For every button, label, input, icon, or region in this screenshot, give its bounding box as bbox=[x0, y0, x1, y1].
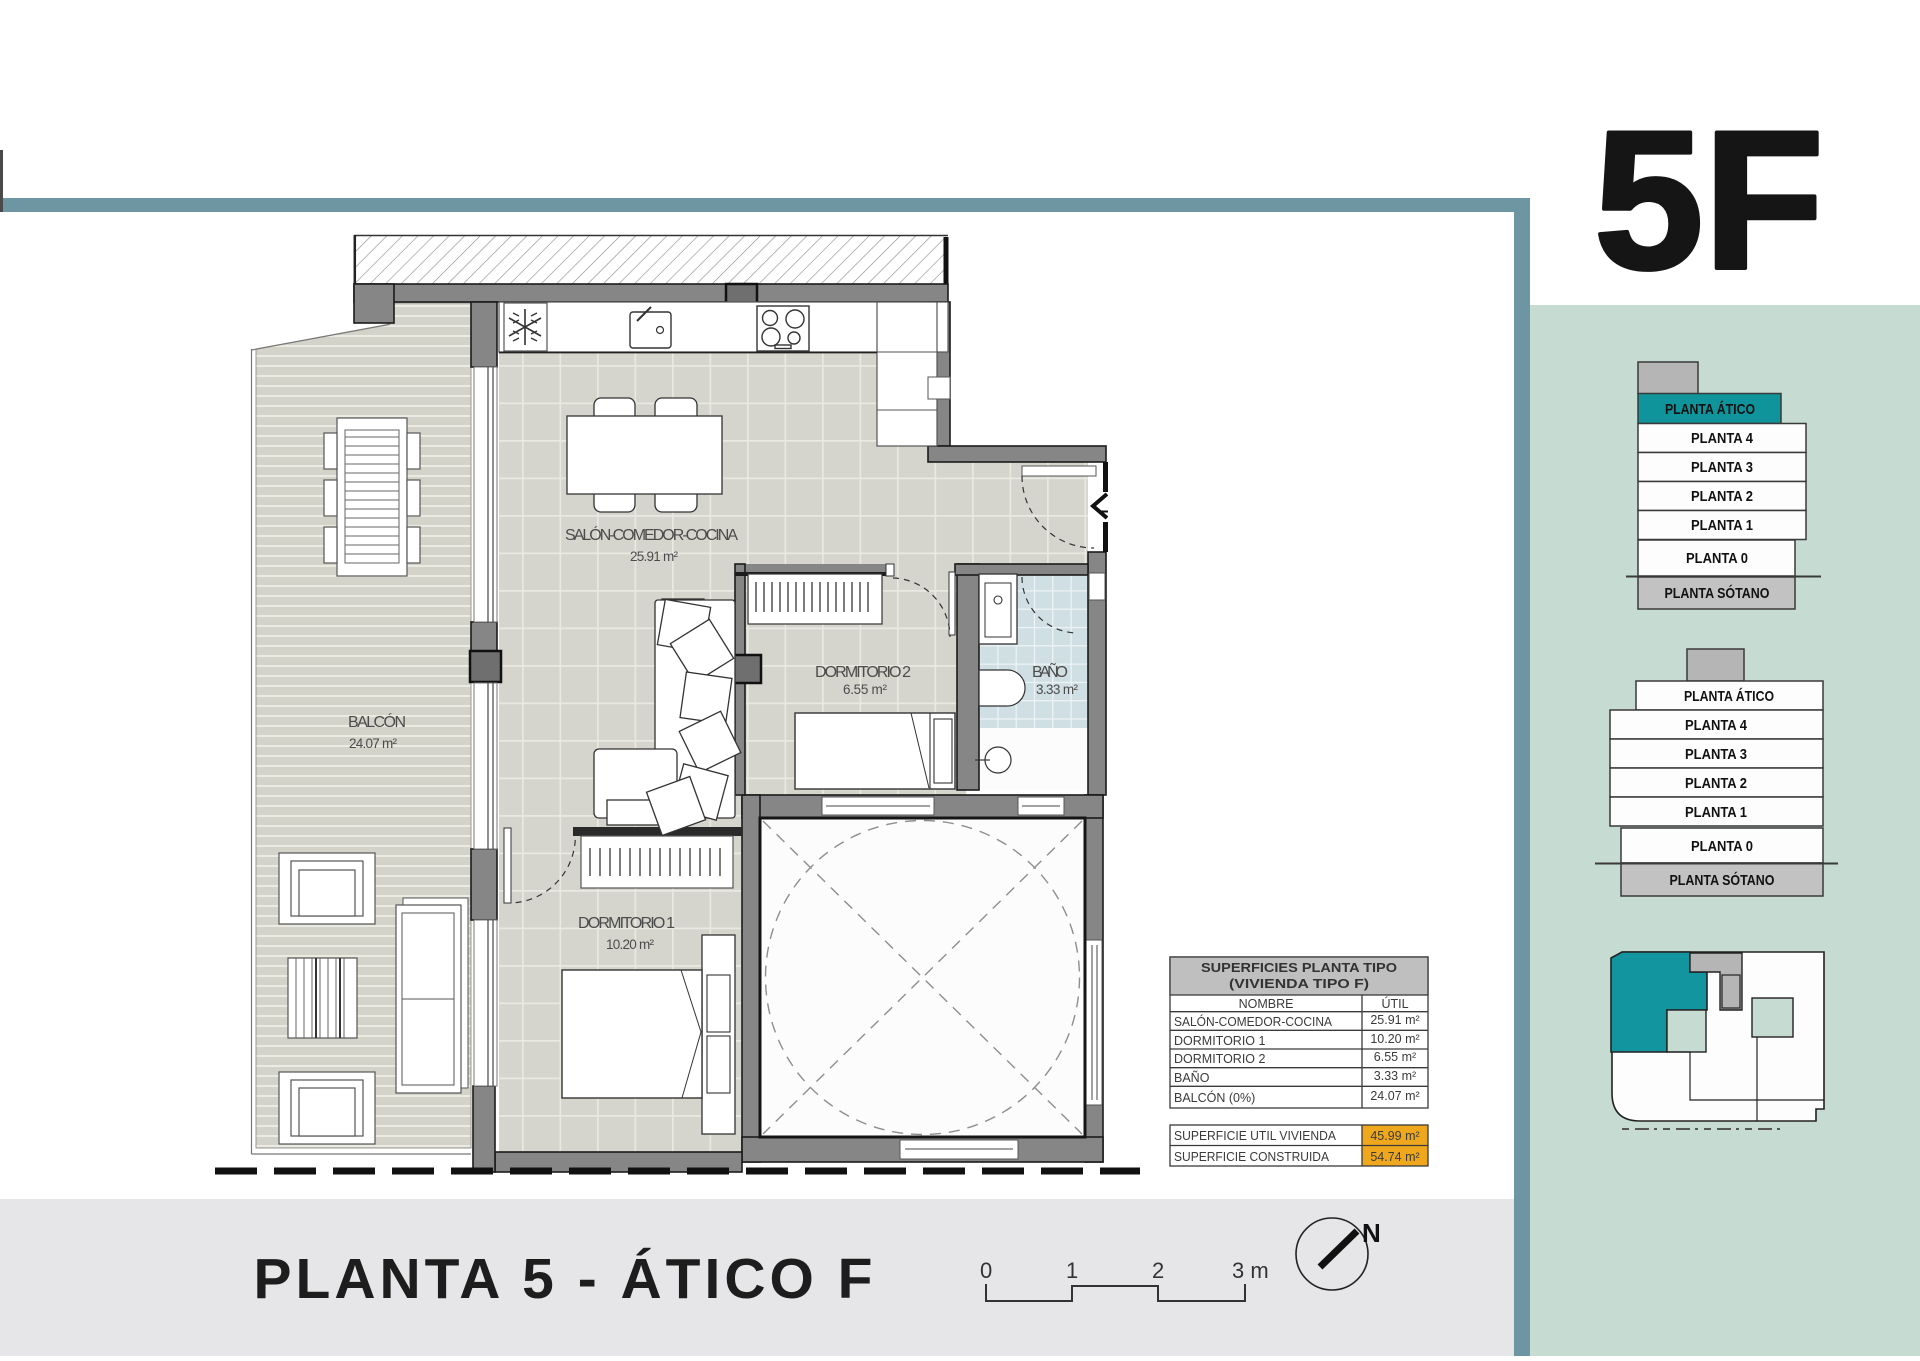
svg-text:10.20 m²: 10.20 m² bbox=[606, 937, 655, 952]
svg-text:PLANTA SÓTANO: PLANTA SÓTANO bbox=[1665, 584, 1770, 602]
svg-text:BAÑO: BAÑO bbox=[1174, 1071, 1210, 1085]
svg-text:PLANTA 1: PLANTA 1 bbox=[1685, 804, 1747, 821]
svg-text:PLANTA 2: PLANTA 2 bbox=[1685, 775, 1747, 792]
svg-text:PLANTA SÓTANO: PLANTA SÓTANO bbox=[1670, 871, 1775, 889]
svg-text:SUPERFICIES PLANTA TIPO: SUPERFICIES PLANTA TIPO bbox=[1201, 960, 1397, 975]
svg-text:PLANTA 3: PLANTA 3 bbox=[1691, 459, 1753, 476]
svg-text:PLANTA 0: PLANTA 0 bbox=[1691, 838, 1753, 855]
svg-text:24.07 m²: 24.07 m² bbox=[1370, 1089, 1419, 1103]
svg-text:NOMBRE: NOMBRE bbox=[1239, 997, 1294, 1011]
svg-text:25.91 m²: 25.91 m² bbox=[1370, 1013, 1419, 1027]
svg-text:DORMITORIO 2: DORMITORIO 2 bbox=[1174, 1052, 1265, 1066]
svg-text:45.99 m²: 45.99 m² bbox=[1370, 1129, 1419, 1143]
svg-text:SUPERFICIE UTIL VIVIENDA: SUPERFICIE UTIL VIVIENDA bbox=[1174, 1129, 1337, 1143]
svg-text:54.74 m²: 54.74 m² bbox=[1370, 1150, 1419, 1164]
svg-text:BALCÓN (0%): BALCÓN (0%) bbox=[1174, 1090, 1255, 1105]
svg-text:BAÑO: BAÑO bbox=[1032, 661, 1068, 681]
svg-text:BALCÓN: BALCÓN bbox=[348, 712, 406, 731]
svg-text:N: N bbox=[1362, 1218, 1381, 1248]
svg-text:5F: 5F bbox=[1594, 90, 1824, 310]
svg-text:3.33 m²: 3.33 m² bbox=[1374, 1069, 1416, 1083]
svg-text:PLANTA ÁTICO: PLANTA ÁTICO bbox=[1665, 401, 1755, 418]
svg-text:25.91 m²: 25.91 m² bbox=[630, 549, 679, 564]
svg-text:PLANTA 3: PLANTA 3 bbox=[1685, 746, 1747, 763]
svg-text:6.55 m²: 6.55 m² bbox=[1374, 1050, 1416, 1064]
svg-text:0: 0 bbox=[980, 1258, 992, 1283]
svg-text:SALÓN-COMEDOR-COCINA: SALÓN-COMEDOR-COCINA bbox=[1174, 1014, 1333, 1029]
svg-text:PLANTA ÁTICO: PLANTA ÁTICO bbox=[1684, 688, 1774, 705]
svg-text:DORMITORIO 1: DORMITORIO 1 bbox=[578, 915, 675, 932]
svg-text:2: 2 bbox=[1152, 1258, 1164, 1283]
svg-text:PLANTA 5 - ÁTICO F: PLANTA 5 - ÁTICO F bbox=[254, 1247, 877, 1311]
svg-text:(VIVIENDA TIPO F): (VIVIENDA TIPO F) bbox=[1229, 976, 1369, 991]
svg-text:PLANTA 4: PLANTA 4 bbox=[1691, 430, 1754, 447]
svg-text:3 m: 3 m bbox=[1232, 1258, 1269, 1283]
svg-text:DORMITORIO 2: DORMITORIO 2 bbox=[815, 664, 911, 681]
svg-text:DORMITORIO 1: DORMITORIO 1 bbox=[1174, 1034, 1265, 1048]
svg-text:SUPERFICIE CONSTRUIDA: SUPERFICIE CONSTRUIDA bbox=[1174, 1150, 1330, 1164]
svg-text:PLANTA 0: PLANTA 0 bbox=[1686, 550, 1748, 567]
svg-text:PLANTA 4: PLANTA 4 bbox=[1685, 717, 1748, 734]
svg-text:SALÓN-COMEDOR-COCINA: SALÓN-COMEDOR-COCINA bbox=[565, 525, 738, 544]
svg-text:PLANTA 2: PLANTA 2 bbox=[1691, 488, 1753, 505]
svg-text:10.20 m²: 10.20 m² bbox=[1370, 1032, 1419, 1046]
svg-text:24.07 m²: 24.07 m² bbox=[349, 736, 398, 751]
svg-text:3.33 m²: 3.33 m² bbox=[1036, 682, 1079, 697]
svg-text:ÚTIL: ÚTIL bbox=[1381, 996, 1408, 1011]
svg-text:PLANTA 1: PLANTA 1 bbox=[1691, 517, 1753, 534]
svg-text:6.55 m²: 6.55 m² bbox=[843, 682, 888, 697]
svg-text:1: 1 bbox=[1066, 1258, 1078, 1283]
